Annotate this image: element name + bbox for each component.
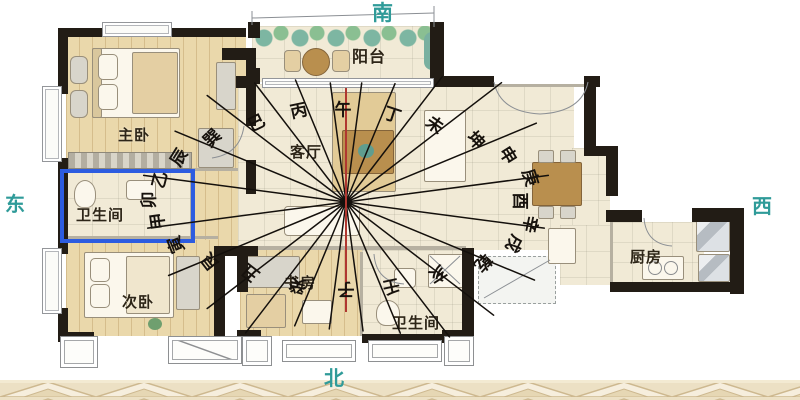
dining-chair	[538, 150, 554, 163]
wall-segment	[584, 76, 596, 154]
armchair	[70, 90, 88, 118]
kitchen-appliance	[698, 254, 730, 282]
direction-east: 东	[5, 188, 25, 217]
mountain-label-酉: 酉	[511, 193, 528, 210]
balcony-chair	[284, 50, 301, 72]
wall-segment	[58, 28, 68, 94]
wall-segment	[246, 160, 256, 194]
plant-small	[148, 318, 162, 330]
direction-west: 西	[752, 190, 772, 219]
label-balcony: 阳台	[352, 43, 386, 67]
balcony-table	[302, 48, 330, 76]
balcony-chair	[332, 50, 350, 72]
desk-second-bedroom	[176, 256, 200, 310]
mountain-label-丙: 丙	[289, 102, 309, 122]
window-frame	[368, 340, 442, 362]
wall-segment	[168, 28, 246, 37]
window-living-balcony	[262, 78, 434, 88]
wall-segment	[248, 68, 260, 84]
window-frame	[444, 336, 474, 366]
window-frame-crossed	[168, 336, 242, 364]
wall-segment	[430, 22, 444, 84]
label-living-room: 客厅	[290, 141, 322, 162]
direction-north: 北	[324, 362, 344, 391]
direction-south: 南	[372, 0, 393, 27]
armchair	[70, 56, 88, 84]
mountain-label-壬: 壬	[381, 275, 401, 295]
balcony-plants	[254, 26, 430, 50]
sink-basin	[664, 261, 678, 275]
bathroom-highlight-box	[60, 169, 195, 243]
pillow	[90, 284, 110, 308]
mountain-label-午: 午	[335, 103, 352, 120]
wall-segment	[610, 282, 744, 292]
fengshui-floorplan-screenshot: 午丁未坤申庚酉辛戌乾亥壬子癸丑艮寅甲卯乙辰巽巳丙 主卧 卫生间 次卧 阳台 客厅…	[0, 0, 800, 400]
dresser	[216, 62, 236, 110]
study-shelf	[246, 294, 286, 328]
partition	[360, 252, 363, 336]
window	[102, 22, 172, 37]
window-frame	[60, 336, 98, 368]
bay-window	[42, 86, 62, 162]
mountain-label-乙: 乙	[151, 170, 172, 191]
mountain-label-子: 子	[338, 280, 355, 297]
partition	[610, 222, 613, 284]
bay-window	[42, 248, 62, 314]
window-frame	[282, 340, 356, 362]
mountain-label-卯: 卯	[142, 192, 159, 209]
pillow	[98, 84, 118, 110]
wall-segment	[248, 22, 260, 38]
fridge	[548, 228, 576, 264]
study-table	[302, 300, 332, 324]
wall-segment	[476, 76, 494, 87]
sofa	[284, 206, 360, 236]
dining-table	[532, 162, 582, 206]
wall-segment	[58, 28, 104, 37]
table-plant	[358, 144, 374, 158]
blanket	[132, 52, 178, 114]
wall-segment	[432, 76, 478, 87]
dining-chair	[560, 150, 576, 163]
mountain-label-甲: 甲	[149, 211, 168, 230]
dining-chair	[560, 206, 576, 219]
pillow	[98, 54, 118, 80]
window-frame	[242, 336, 272, 366]
label-bathroom-bottom: 卫生间	[392, 312, 440, 333]
wall-segment	[606, 210, 642, 222]
mountain-label-辛: 辛	[519, 214, 539, 234]
partition	[238, 246, 466, 250]
wall-segment	[606, 146, 618, 196]
label-master-bedroom: 主卧	[118, 124, 150, 145]
label-kitchen: 厨房	[630, 246, 662, 267]
label-second-bedroom: 次卧	[122, 291, 154, 312]
pillow	[90, 258, 110, 282]
decorative-footer-band	[0, 380, 800, 400]
wall-segment	[236, 76, 248, 88]
